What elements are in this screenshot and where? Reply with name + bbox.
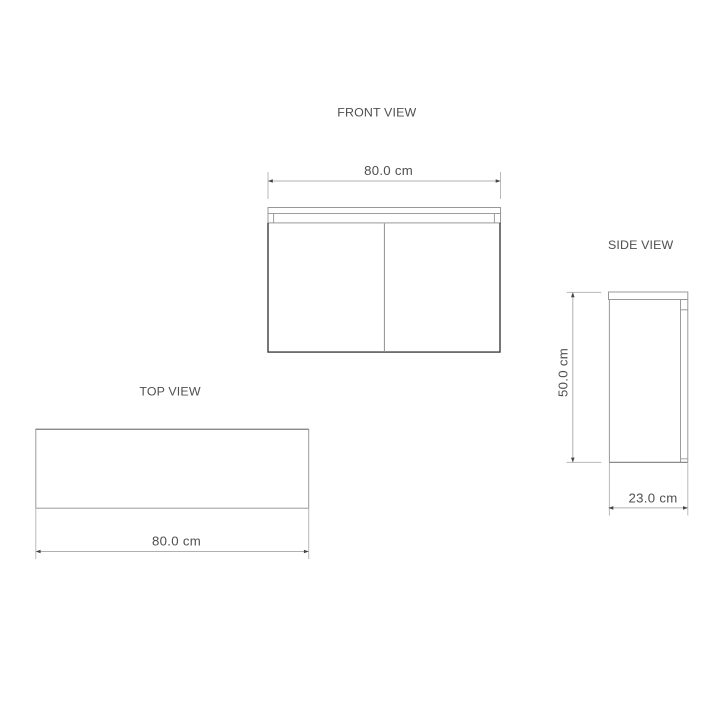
- svg-text:SIDE VIEW: SIDE VIEW: [608, 238, 674, 252]
- svg-text:50.0 cm: 50.0 cm: [556, 348, 571, 397]
- svg-text:FRONT VIEW: FRONT VIEW: [337, 106, 416, 120]
- svg-text:80.0 cm: 80.0 cm: [152, 534, 201, 549]
- svg-text:80.0 cm: 80.0 cm: [364, 163, 413, 178]
- svg-text:23.0 cm: 23.0 cm: [628, 491, 677, 506]
- svg-text:TOP VIEW: TOP VIEW: [139, 385, 200, 399]
